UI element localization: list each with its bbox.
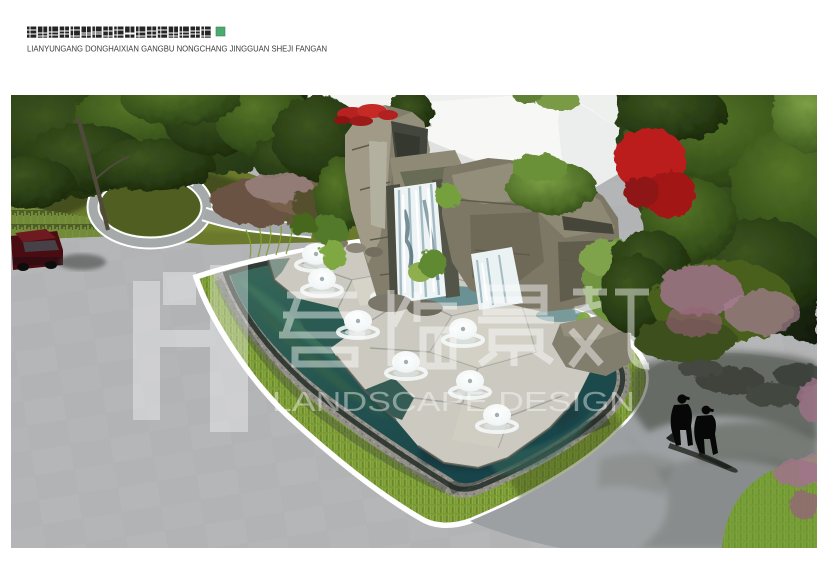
svg-text:LIANYUNGANG DONGHAIXIAN GANGBU: LIANYUNGANG DONGHAIXIAN GANGBU NONGCHANG… bbox=[27, 44, 327, 54]
svg-text:LANDSCAPE DESIGN: LANDSCAPE DESIGN bbox=[272, 386, 635, 417]
